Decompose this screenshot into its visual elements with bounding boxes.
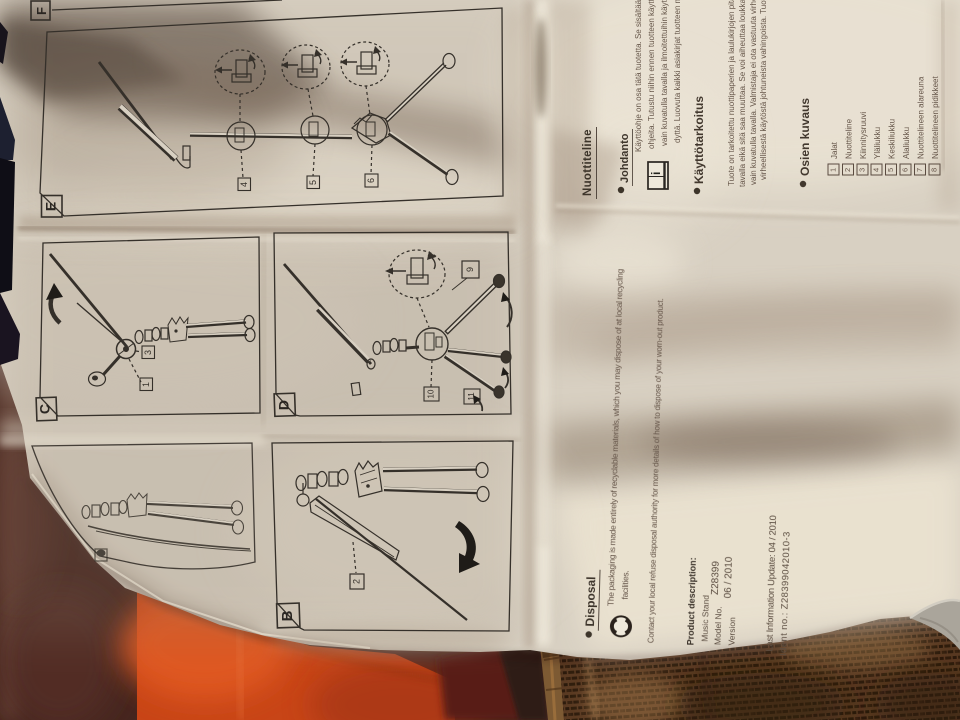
svg-text:3: 3 <box>143 350 153 355</box>
svg-text:2: 2 <box>351 579 361 584</box>
svg-text:vain kuvatulla tavalla. Valmis: vain kuvatulla tavalla. Valmistaja ei ot… <box>749 0 758 185</box>
svg-text:ohjeita. Tutustu niihin ennen: ohjeita. Tutustu niihin ennen tuotteen k… <box>647 0 656 149</box>
svg-text:6: 6 <box>366 178 376 183</box>
svg-text:Yläliukku: Yläliukku <box>873 127 882 159</box>
svg-text:4: 4 <box>239 182 249 187</box>
svg-text:3: 3 <box>858 168 867 172</box>
svg-text:5: 5 <box>308 180 318 185</box>
svg-text:06 / 2010: 06 / 2010 <box>723 556 735 598</box>
svg-text:Käyttöohje on osa tätä tuotett: Käyttöohje on osa tätä tuotetta. Se sisä… <box>634 0 643 152</box>
svg-text:7: 7 <box>915 168 924 172</box>
svg-text:Version: Version <box>726 617 737 646</box>
svg-text:Kiinnitysruuvi: Kiinnitysruuvi <box>859 112 868 159</box>
svg-text:Music Stand: Music Stand <box>700 595 711 642</box>
svg-text:vain kuvatulla tavalla ja ilmo: vain kuvatulla tavalla ja ilmoitettuihin… <box>660 0 669 146</box>
svg-text:Nuottiteline: Nuottiteline <box>845 118 854 159</box>
svg-text:E: E <box>43 202 59 211</box>
svg-text:Keskiliukku: Keskiliukku <box>888 119 897 159</box>
svg-text:F: F <box>34 7 49 15</box>
svg-text:Jalat: Jalat <box>830 141 839 159</box>
svg-text:Nuottiteline: Nuottiteline <box>582 129 594 196</box>
svg-text:Tuote on tarkoitettu nuottipap: Tuote on tarkoitettu nuottipaperien ja l… <box>727 0 736 186</box>
svg-text:D: D <box>276 400 292 410</box>
svg-text:virheellisestä käytöstä johtun: virheellisestä käytöstä johtuneista vahi… <box>759 0 768 180</box>
svg-text:Alaliukku: Alaliukku <box>902 127 911 159</box>
svg-text:B: B <box>279 610 296 621</box>
svg-text:Käyttötarkoitus: Käyttötarkoitus <box>692 96 706 184</box>
svg-text:Nuottitelineen pidikkeet: Nuottitelineen pidikkeet <box>931 76 940 159</box>
svg-text:Model No.: Model No. <box>712 606 723 645</box>
svg-text:Z28399: Z28399 <box>710 560 722 595</box>
svg-text:1: 1 <box>141 382 151 387</box>
svg-text:Osien kuvaus: Osien kuvaus <box>798 98 812 176</box>
svg-text:11: 11 <box>467 392 476 401</box>
svg-text:2: 2 <box>843 168 852 172</box>
svg-text:Johdanto: Johdanto <box>619 133 631 183</box>
svg-text:6: 6 <box>901 168 910 172</box>
svg-text:Nuottitelineen alareuna: Nuottitelineen alareuna <box>917 76 926 159</box>
svg-text:5: 5 <box>886 168 895 172</box>
svg-text:10: 10 <box>427 389 436 398</box>
svg-text:1: 1 <box>829 168 838 172</box>
svg-text:i: i <box>649 172 663 175</box>
svg-text:C: C <box>37 404 53 414</box>
svg-text:dyttä. Luovuta kaikki asiakirj: dyttä. Luovuta kaikki asiakirjat tuottee… <box>673 0 682 143</box>
svg-text:4: 4 <box>872 168 881 172</box>
svg-text:tavalla eikä sitä saa muuttaa.: tavalla eikä sitä saa muuttaa. Se voi ai… <box>738 0 747 187</box>
svg-text:Disposal: Disposal <box>583 576 598 626</box>
svg-text:8: 8 <box>930 168 939 172</box>
svg-text:9: 9 <box>465 267 475 272</box>
svg-text:facilities.: facilities. <box>620 571 631 600</box>
